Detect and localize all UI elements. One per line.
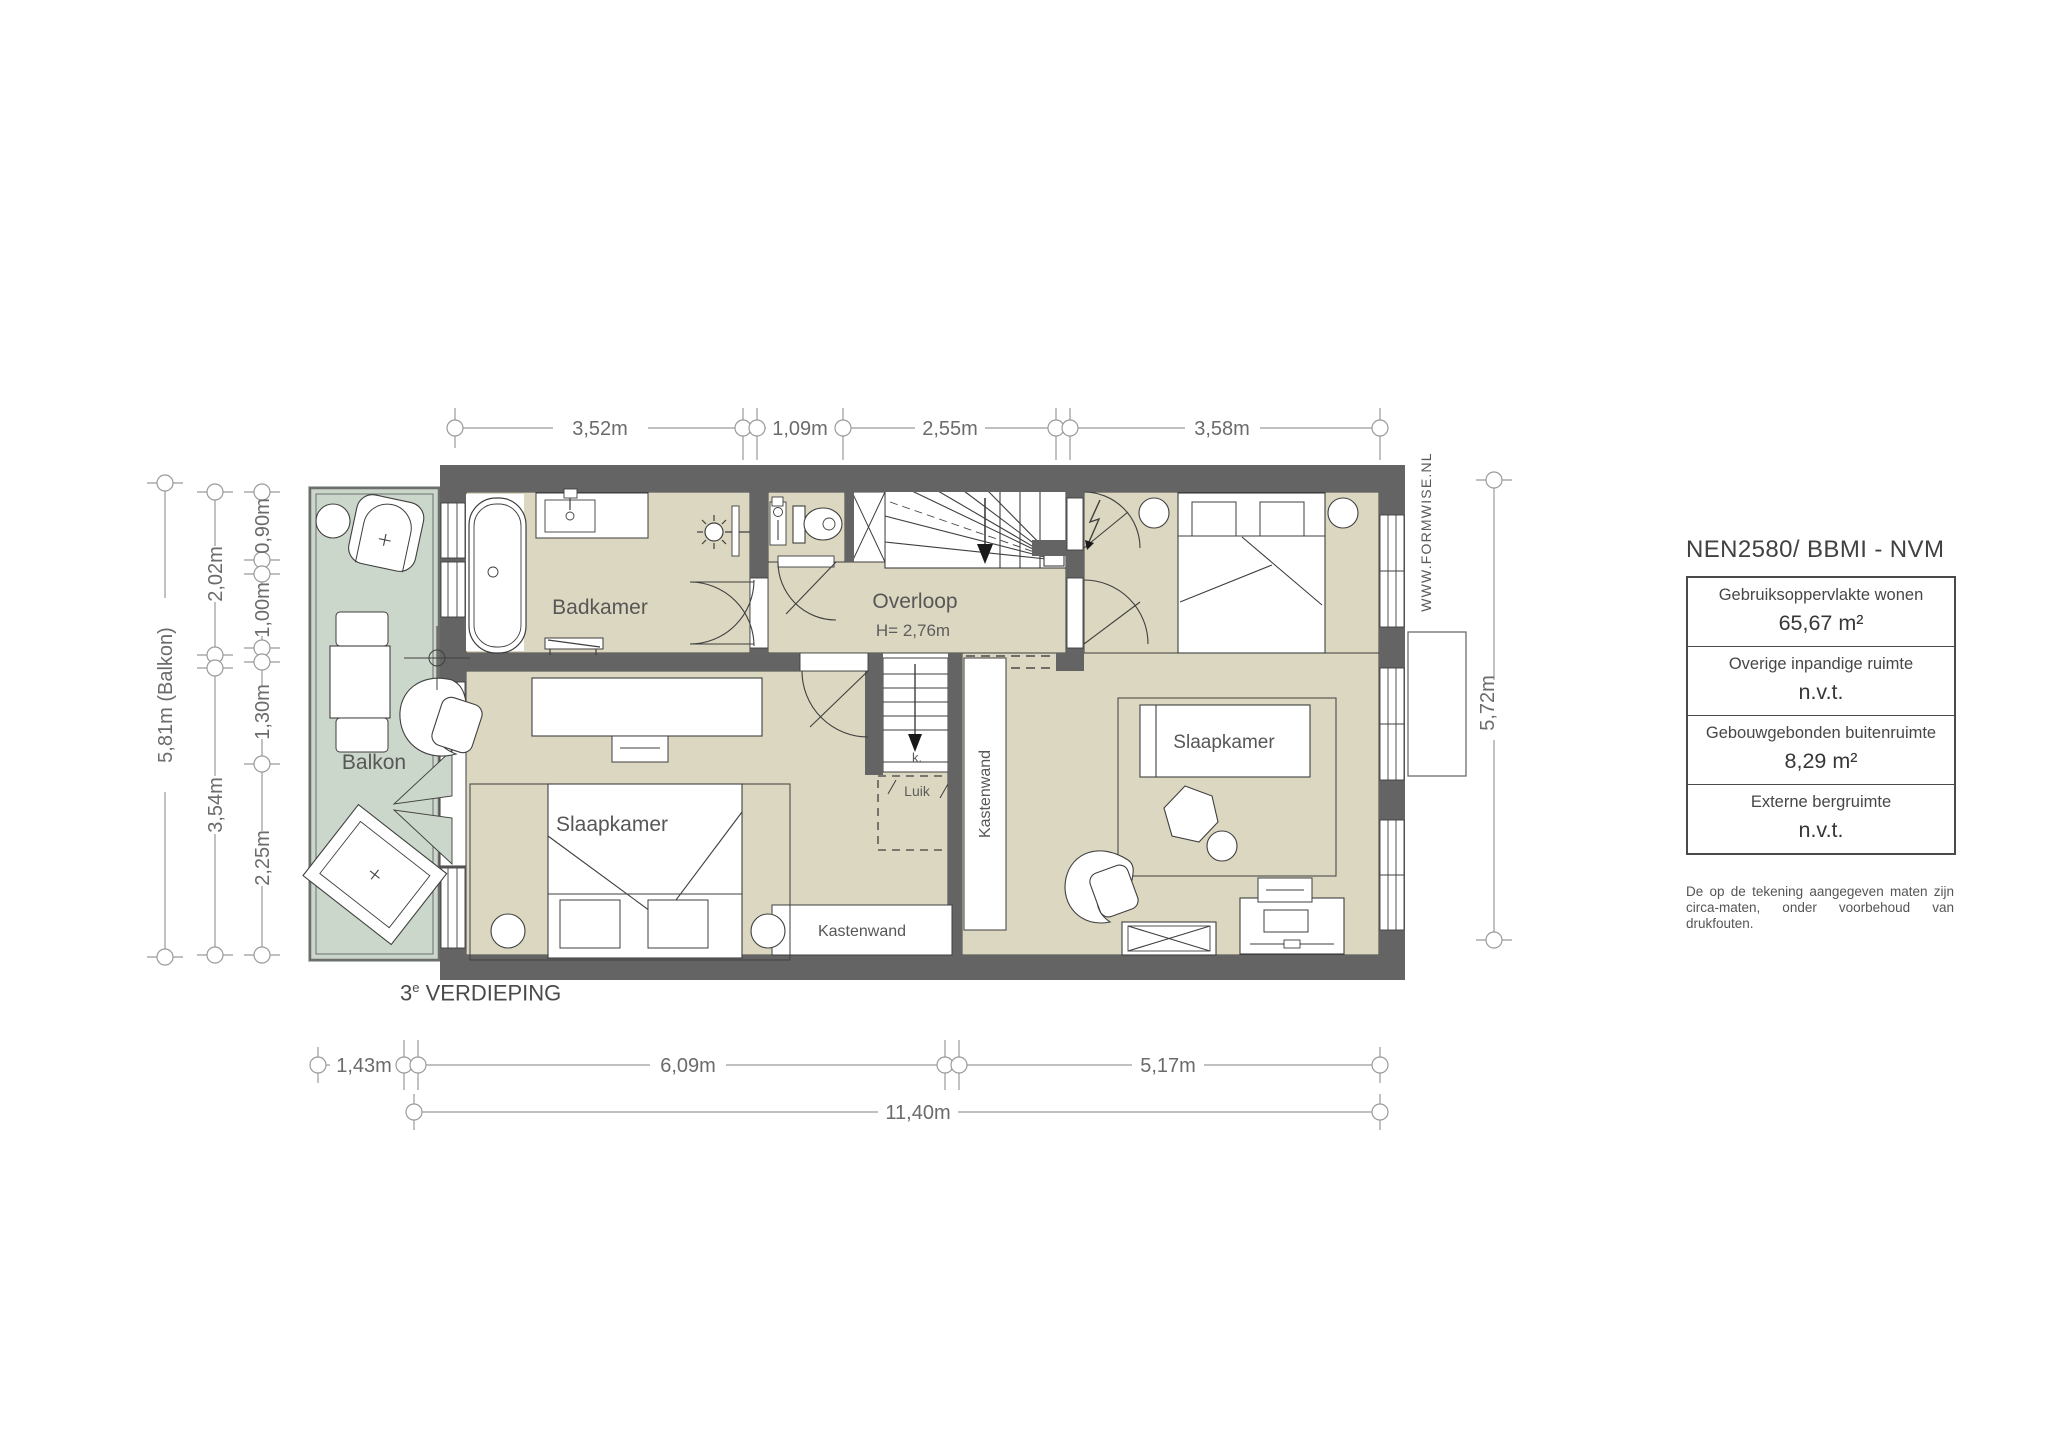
dim-top-3: 2,55m <box>922 418 978 440</box>
sink <box>536 489 648 538</box>
floor-caption: 3e VERDIEPING <box>400 980 561 1006</box>
dim-bottom-total-label: 11,40m <box>885 1102 950 1124</box>
wall-bottom <box>440 955 1405 980</box>
bedroom-left-label: Slaapkamer <box>556 813 668 836</box>
dim-left-inner-2: 1,00m <box>252 582 274 638</box>
nen2580-table: Gebruiksoppervlakte wonen 65,67 m² Overi… <box>1686 576 1956 855</box>
dim-top-1: 3,52m <box>572 418 628 440</box>
wall-top <box>440 465 1405 492</box>
dim-bottom <box>310 1040 1388 1090</box>
row-label: Gebouwgebonden buitenruimte <box>1690 724 1952 743</box>
nightstand-right-1 <box>1139 498 1169 528</box>
storage-chest <box>1122 922 1216 955</box>
dim-bottom-3: 5,17m <box>1140 1055 1196 1077</box>
toilet-sink <box>770 497 786 545</box>
dim-bottom-1: 1,43m <box>336 1055 392 1077</box>
row-label: Overige inpandige ruimte <box>1690 655 1952 674</box>
bed-left <box>548 784 742 958</box>
watermark: WWW.FORMWISE.NL <box>1418 452 1434 612</box>
wall-a-mid <box>868 653 883 671</box>
wall-a-right <box>1056 653 1084 671</box>
staircase-main <box>885 491 1066 568</box>
shaft <box>852 492 885 562</box>
table-row: Externe bergruimte n.v.t. <box>1688 784 1954 853</box>
pouf <box>1207 831 1237 861</box>
nightstand-left-1 <box>491 914 525 948</box>
closet-k-label: k. <box>912 750 922 765</box>
row-value: n.v.t. <box>1690 818 1952 843</box>
panel-disclaimer: De op de tekening aangegeven maten zijn … <box>1686 884 1954 932</box>
balcony-armchair <box>346 492 427 575</box>
dim-right-label: 5,72m <box>1477 675 1499 731</box>
kastenwand-horizontal-label: Kastenwand <box>818 923 906 940</box>
floor-caption-number: 3 <box>400 980 412 1005</box>
dim-left-outer-label: 5,81m (Balkon) <box>155 627 177 763</box>
wall-a-left <box>440 653 800 671</box>
row-value: n.v.t. <box>1690 680 1952 705</box>
towel-radiator <box>732 506 739 556</box>
table-row: Gebruiksoppervlakte wonen 65,67 m² <box>1688 578 1954 646</box>
dim-left-inner-1: 0,90m <box>252 498 274 554</box>
bedroom-right-label: Slaapkamer <box>1173 732 1275 753</box>
balcony-side-table <box>316 504 350 538</box>
dim-top-4: 3,58m <box>1194 418 1250 440</box>
balcony-dining-set <box>330 612 390 752</box>
dim-top-2: 1,09m <box>772 418 828 440</box>
balkon-label: Balkon <box>342 751 406 774</box>
luik-label: Luik <box>904 783 931 799</box>
dim-left-mid-2: 3,54m <box>205 777 227 833</box>
badkamer-label: Badkamer <box>552 596 648 619</box>
wall-toilet-right <box>845 492 854 562</box>
row-value: 8,29 m² <box>1690 749 1952 774</box>
dim-left-mid-1: 2,02m <box>205 546 227 602</box>
french-balcony <box>1408 632 1466 776</box>
dim-left-inner-3: 1,30m <box>252 684 274 740</box>
table-row: Overige inpandige ruimte n.v.t. <box>1688 646 1954 715</box>
bed-right <box>1178 493 1325 653</box>
row-value: 65,67 m² <box>1690 611 1952 636</box>
nightstand-right-2 <box>1328 498 1358 528</box>
dim-left-inner-4: 2,25m <box>252 830 274 886</box>
bathtub <box>469 498 526 653</box>
wall-bedl-right-upper <box>865 671 883 775</box>
floor-caption-text: VERDIEPING <box>419 980 561 1005</box>
row-label: Gebruiksoppervlakte wonen <box>1690 586 1952 605</box>
row-label: Externe bergruimte <box>1690 793 1952 812</box>
overloop-label: Overloop <box>872 590 957 613</box>
kastenwand-vertical-label: Kastenwand <box>977 750 994 838</box>
table-row: Gebouwgebonden buitenruimte 8,29 m² <box>1688 715 1954 784</box>
wall-meterkast-stub <box>1032 540 1068 556</box>
dim-bottom-2: 6,09m <box>660 1055 716 1077</box>
nightstand-left-2 <box>751 914 785 948</box>
panel-title: NEN2580/ BBMI - NVM <box>1686 536 1956 564</box>
overloop-height-label: H= 2,76m <box>876 621 950 640</box>
